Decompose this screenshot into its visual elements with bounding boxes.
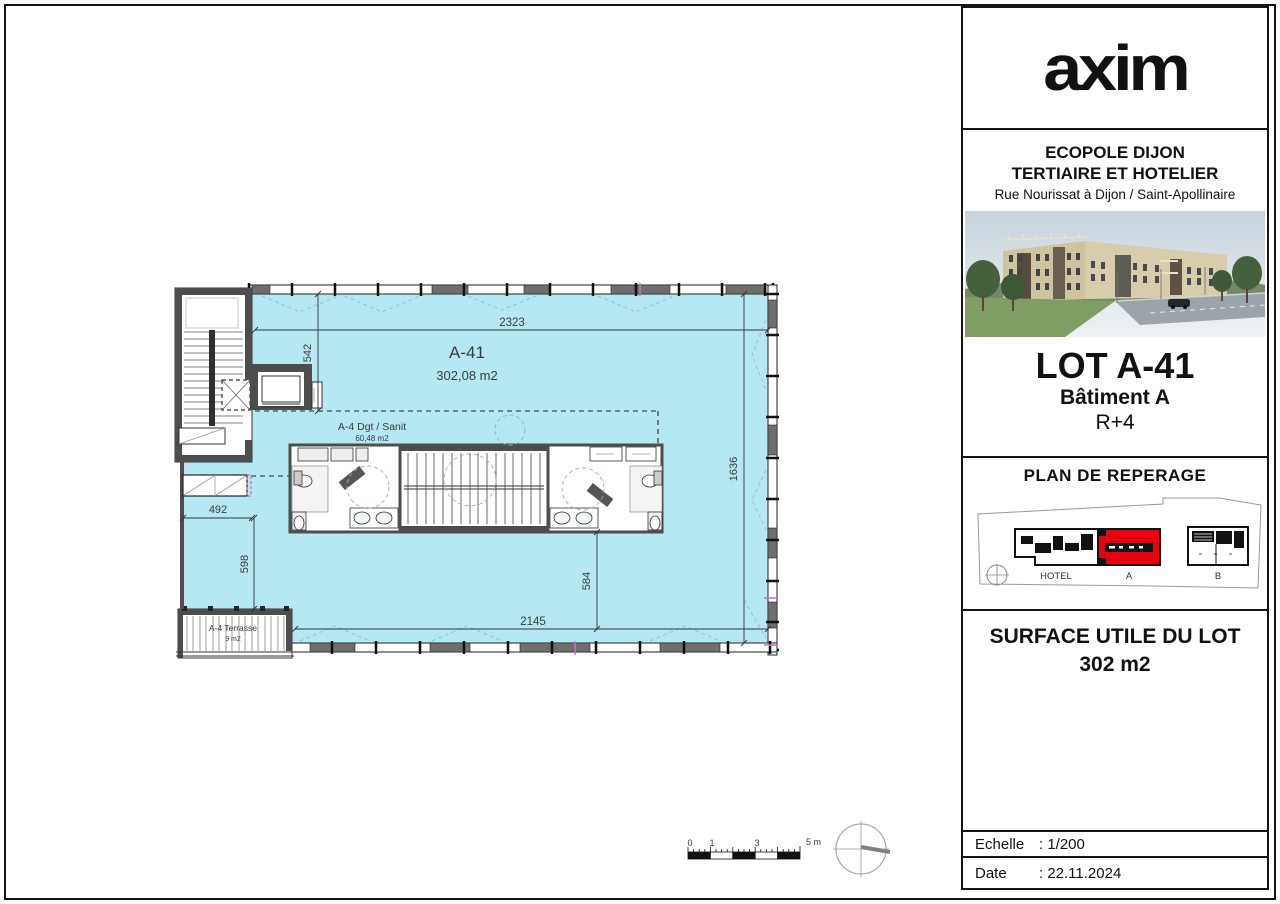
- date-row: Date : 22.11.2024: [961, 858, 1269, 890]
- terrace-label: A-4 Terrasse: [209, 623, 257, 633]
- key-plan: HOTEL A B: [963, 488, 1267, 606]
- elevator: [250, 364, 322, 410]
- dim-bottom-inner: 584: [581, 572, 593, 590]
- scale-bar: 0 1 3 5 m: [687, 837, 821, 859]
- keyplan-compass-icon: [985, 564, 1009, 586]
- lot-building: Bâtiment A: [963, 386, 1267, 410]
- lot-level: R+4: [963, 411, 1267, 435]
- keyplan-hotel-label: HOTEL: [1040, 571, 1072, 582]
- bottom-wall: [288, 641, 777, 654]
- top-wall: [249, 283, 774, 296]
- surface-box: SURFACE UTILE DU LOT 302 m2: [961, 611, 1269, 832]
- reperage-title: PLAN DE REPERAGE: [963, 466, 1267, 486]
- keyplan-b-label: B: [1215, 571, 1221, 582]
- keyplan-lot-a: [1098, 529, 1160, 565]
- keyplan-a-label: A: [1126, 571, 1133, 582]
- main-room-area: 302,08 m2: [436, 368, 497, 383]
- surface-value: 302 m2: [963, 653, 1267, 677]
- keyplan-b: [1188, 527, 1248, 565]
- scalebar-1: 1: [709, 838, 714, 848]
- surface-title: SURFACE UTILE DU LOT: [963, 625, 1267, 649]
- logo-box: axim: [961, 6, 1269, 130]
- title-block: axim ECOPOLE DIJON TERTIAIRE ET HOTELIER…: [961, 6, 1269, 890]
- project-title-line1: ECOPOLE DIJON: [963, 142, 1267, 163]
- terrace: A-4 Terrasse 9 m2: [176, 606, 294, 658]
- scalebar-5m: 5 m: [806, 837, 821, 847]
- dim-stair: 542: [302, 344, 314, 362]
- north-symbol: [833, 821, 890, 877]
- dim-left-width: 492: [209, 504, 227, 516]
- project-address: Rue Nourissat à Dijon / Saint-Apollinair…: [963, 187, 1267, 202]
- stairwell: [175, 288, 252, 462]
- sanit-area: 60,48 m2: [355, 434, 389, 443]
- lot-title: LOT A-41: [963, 347, 1267, 385]
- scalebar-3: 3: [754, 838, 759, 848]
- building-render-image: [963, 211, 1267, 337]
- axim-logo: axim: [1043, 36, 1187, 100]
- scale-row: Echelle : 1/200: [961, 832, 1269, 858]
- dim-left-height: 598: [239, 555, 251, 573]
- date-value: : 22.11.2024: [1039, 865, 1121, 882]
- right-wall: [766, 285, 779, 655]
- scale-label: Echelle: [975, 836, 1039, 853]
- project-box: ECOPOLE DIJON TERTIAIRE ET HOTELIER Rue …: [961, 130, 1269, 458]
- dim-top: 2323: [499, 317, 525, 329]
- terrace-area: 9 m2: [225, 636, 241, 643]
- scale-value: : 1/200: [1039, 836, 1085, 853]
- date-label: Date: [975, 865, 1039, 882]
- scalebar-0: 0: [687, 838, 692, 848]
- reperage-box: PLAN DE REPERAGE: [961, 458, 1269, 611]
- sanit-label: A-4 Dgt / Sanit: [338, 421, 406, 433]
- dim-right: 1636: [728, 457, 740, 481]
- main-room-label: A-41: [449, 343, 485, 362]
- dim-bottom: 2145: [520, 616, 546, 628]
- project-title-line2: TERTIAIRE ET HOTELIER: [963, 163, 1267, 184]
- keyplan-hotel: [1015, 529, 1098, 565]
- plan-sheet: A-4 Terrasse 9 m2 2323 542 1636: [0, 0, 1280, 904]
